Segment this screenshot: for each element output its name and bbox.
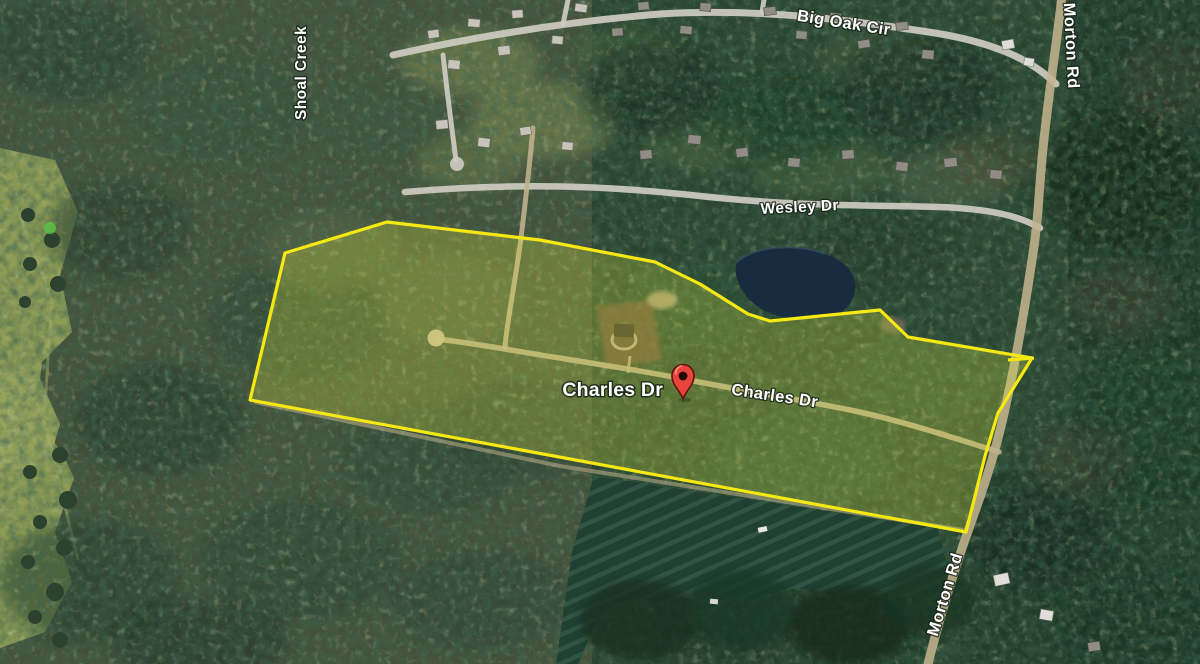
satellite-map-canvas[interactable]: Big Oak Cir Shoal Creek Wesley Dr Morton… xyxy=(0,0,1200,664)
parcel-boundary-stub xyxy=(1008,358,1034,360)
place-label-charles-dr: Charles Dr xyxy=(562,379,663,401)
road-label-shoal-creek: Shoal Creek xyxy=(293,26,310,120)
pin-center-dot xyxy=(679,372,688,381)
cul-de-sac-north xyxy=(450,157,464,171)
